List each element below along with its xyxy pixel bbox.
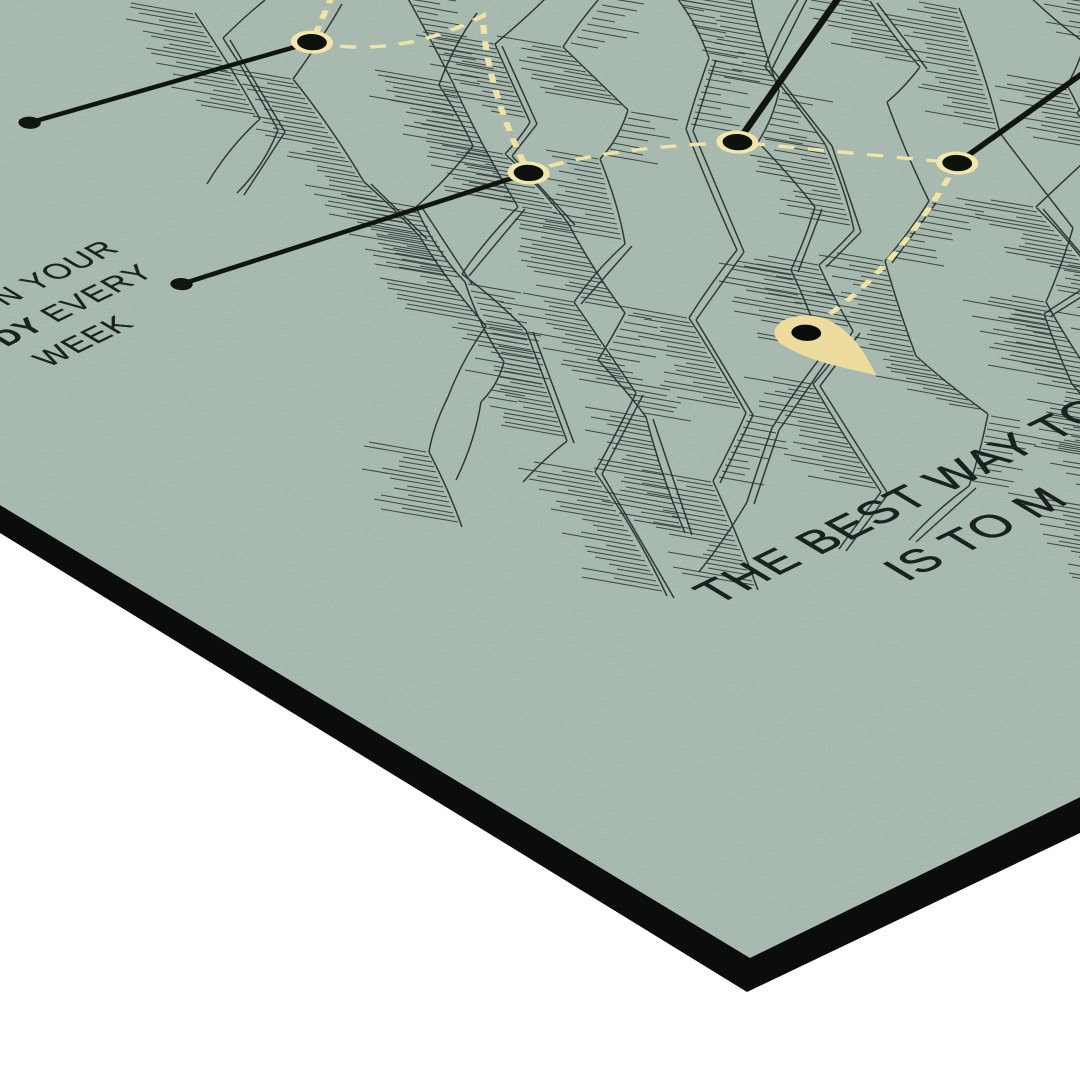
callout-line-4 bbox=[904, 0, 1080, 163]
callout-line-2 bbox=[182, 141, 529, 316]
product-photo: N YOUR ODY EVERY WEEK THE BEST WAY TO IS… bbox=[0, 0, 1080, 1080]
callout-line-1 bbox=[30, 11, 312, 155]
label-terminal-dot-1 bbox=[14, 114, 46, 131]
callout-line-3 bbox=[589, 0, 1057, 142]
waypoint-dot-4 bbox=[927, 147, 987, 179]
label-terminal-dot-2 bbox=[166, 276, 198, 293]
waypoint-dot-2 bbox=[499, 157, 559, 189]
waypoint-dot-3 bbox=[708, 126, 768, 158]
route-path bbox=[267, 0, 1039, 332]
location-pin-icon bbox=[761, 308, 901, 387]
waypoint-dot-1 bbox=[282, 26, 342, 58]
